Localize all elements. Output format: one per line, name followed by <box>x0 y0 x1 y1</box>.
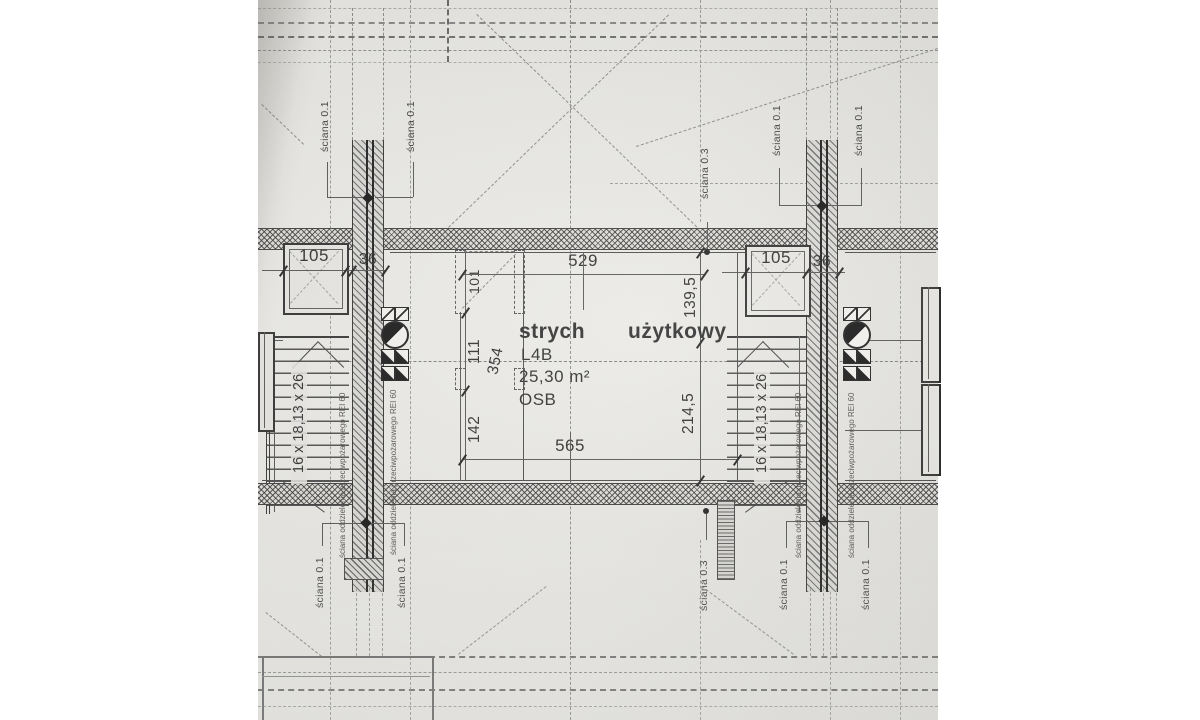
window-right-edge-line <box>928 384 929 472</box>
leader-line <box>327 197 365 198</box>
flue-symbol-right <box>843 366 857 381</box>
room-area: 25,30 m² <box>519 367 609 387</box>
room-floor: OSB <box>519 390 579 410</box>
leader-line <box>706 514 707 540</box>
wall-label: ściana 0.1 <box>314 548 326 618</box>
flue-symbol-right <box>857 307 871 321</box>
fire-wall-right-projection <box>806 8 838 140</box>
room-wall-line <box>845 480 936 481</box>
fire-wall-left-projection <box>382 588 383 656</box>
leader-line <box>322 523 323 546</box>
wall-node <box>704 249 710 255</box>
room-wall-line <box>737 252 738 480</box>
wall-label: ściana 0.3 <box>698 542 710 630</box>
dim-right-lower: 214,5 <box>680 380 698 446</box>
wall-label: ściana 0.1 <box>405 92 417 162</box>
wall-label: ściana 0.3 <box>699 128 711 220</box>
leader-line <box>327 162 328 197</box>
wall-label: ściana 0.1 <box>853 96 865 166</box>
dim-left-upper: 111 <box>466 328 484 374</box>
flue-symbol-left <box>395 307 409 321</box>
leader-line <box>779 168 780 206</box>
vent-symbol-right <box>843 321 871 349</box>
dim-wall-right: 36 <box>808 253 836 271</box>
dim-wall-left: 36 <box>354 251 382 269</box>
dimension-line <box>462 459 737 460</box>
leader-line <box>828 205 861 206</box>
lower-floor-outline <box>262 656 434 720</box>
wall-label: ściana 0.1 <box>771 96 783 166</box>
flue-symbol-left <box>381 307 395 321</box>
fire-wall-right-projection <box>810 588 811 656</box>
window-left-edge <box>258 332 275 432</box>
dimension-line <box>700 252 701 480</box>
leader-line <box>861 168 862 206</box>
wall-end-hatch <box>344 558 384 580</box>
fire-wall-left-projection <box>356 588 357 656</box>
window-right-edge <box>921 287 941 383</box>
window-left-edge-line <box>264 332 265 428</box>
leader-line <box>868 521 869 548</box>
room-name: użytkowy <box>628 320 738 344</box>
witness-line <box>570 432 571 482</box>
fire-wall-right-projection <box>823 588 824 656</box>
flue-symbol-left <box>381 366 395 381</box>
fire-wall-right-projection <box>836 588 837 656</box>
fire-wall-label: ściana oddzielenia przeciwpożarowego REI… <box>794 355 803 595</box>
rafter-line <box>447 0 449 62</box>
lower-wall-strip <box>717 500 735 580</box>
fire-wall-left-projection <box>369 588 370 656</box>
dim-chimney-left: 105 <box>293 246 335 266</box>
flue-symbol-right <box>843 349 857 364</box>
flue-symbol-right <box>843 307 857 321</box>
witness-line <box>583 252 584 310</box>
room-wall-line <box>390 480 806 481</box>
wall-node <box>703 508 709 514</box>
vent-symbol-left <box>381 321 409 349</box>
leader-line <box>371 523 404 524</box>
dim-left-lower: 142 <box>466 406 484 452</box>
fire-wall-label: ściana oddzielenia przeciwpożarowego REI… <box>389 350 398 595</box>
flue-symbol-right <box>857 349 871 364</box>
dimension-line <box>722 272 845 273</box>
leader-line <box>413 162 414 197</box>
wall-label: ściana 0.1 <box>319 92 331 162</box>
flue-symbol-left <box>395 366 409 381</box>
room-unit: L4B <box>521 345 581 365</box>
leader-line <box>707 222 708 250</box>
dim-chimney-right: 105 <box>755 248 797 268</box>
dim-window: 101 <box>466 260 482 304</box>
leader-line <box>786 521 787 548</box>
roof-line <box>610 183 938 184</box>
stairs-left-spec: 16 x 18,13 x 26 <box>291 362 307 484</box>
leader-line <box>404 523 405 546</box>
leader-line <box>375 197 413 198</box>
wall-label: ściana 0.1 <box>778 550 790 620</box>
fire-wall-label: ściana oddzielenia przeciwpożarowego REI… <box>847 355 856 595</box>
partition-line <box>845 430 921 431</box>
lower-floor-line <box>262 676 430 677</box>
window-line <box>464 251 514 252</box>
room-wall-line <box>845 252 936 253</box>
leader-line <box>779 205 819 206</box>
window-right-edge-line <box>928 287 929 379</box>
window-right-edge <box>921 384 941 476</box>
wall-label: ściana 0.1 <box>860 550 872 620</box>
floor-plan-photo: ściana 0.1 ściana 0.1 ściana 0.3 ściana … <box>0 0 1200 720</box>
flue-symbol-left <box>395 349 409 364</box>
window-symbol <box>514 250 525 314</box>
wall-axis-line <box>900 0 901 720</box>
room-name: strych <box>519 320 599 344</box>
stairs-right-spec: 16 x 18,13 x 26 <box>754 362 770 484</box>
leader-line <box>786 521 822 522</box>
fire-wall-left-projection <box>352 8 384 140</box>
flue-symbol-right <box>857 366 871 381</box>
dim-right-upper: 139,5 <box>682 266 700 328</box>
flue-symbol-left <box>381 349 395 364</box>
dimension-line <box>262 270 385 271</box>
